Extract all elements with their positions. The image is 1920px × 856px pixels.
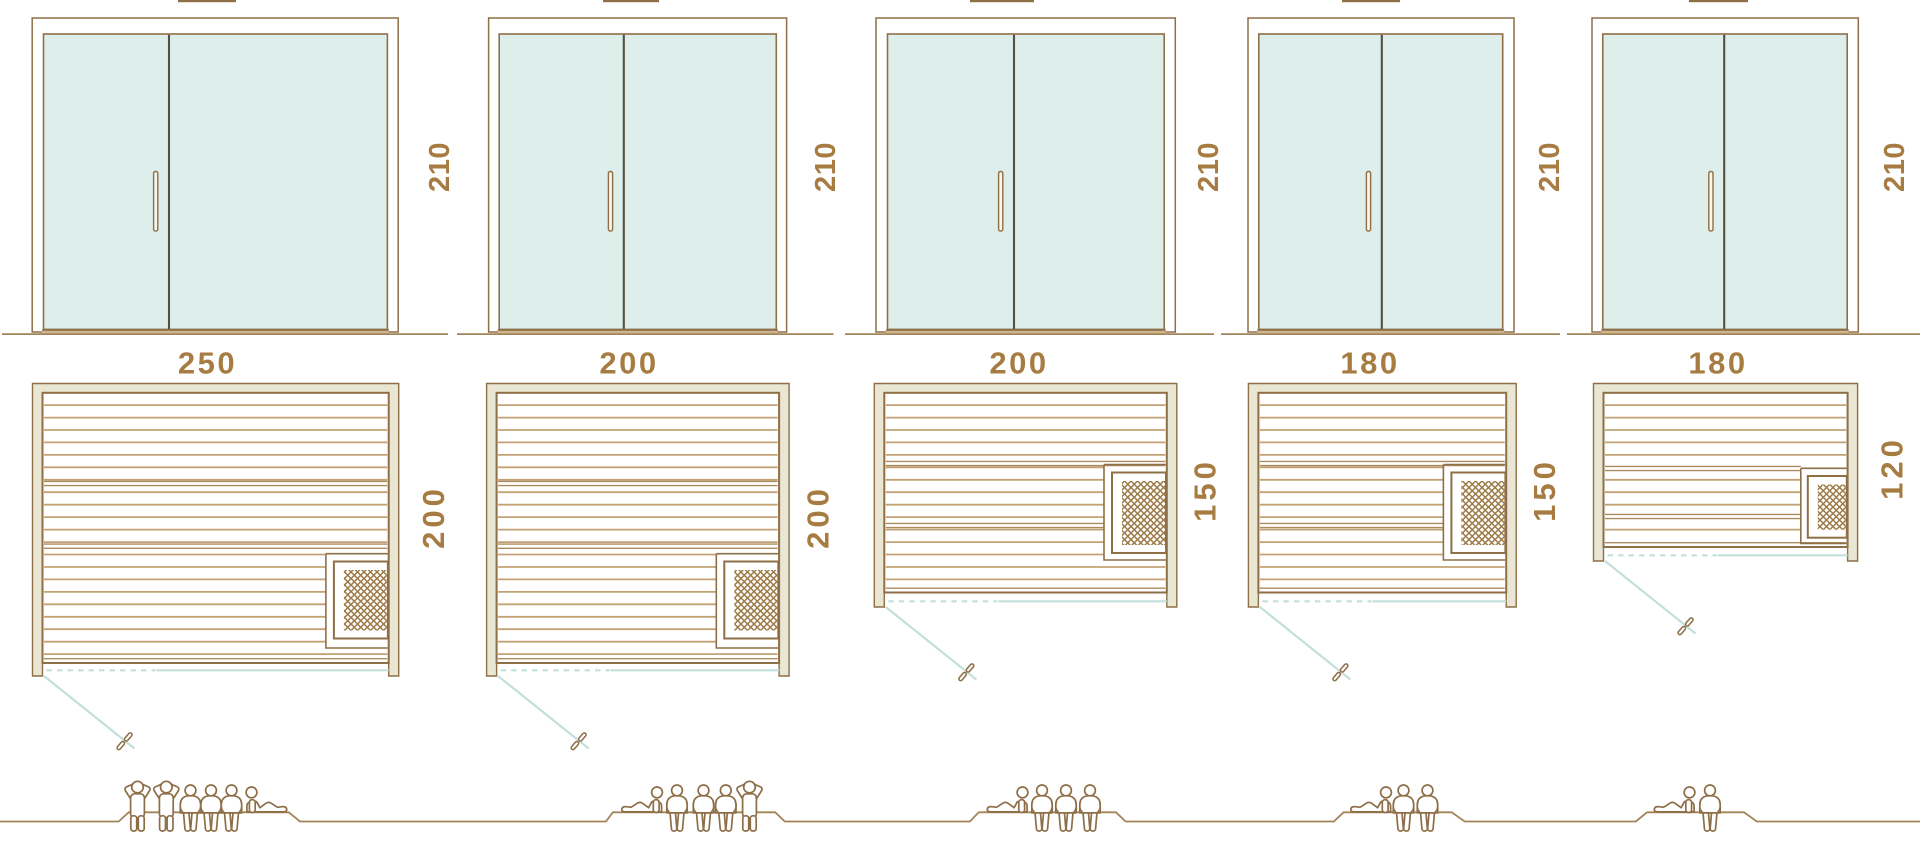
- svg-text:150: 150: [1527, 458, 1562, 522]
- svg-text:120: 120: [1874, 436, 1909, 500]
- svg-text:250: 250: [178, 346, 237, 381]
- svg-text:210: 210: [424, 142, 456, 192]
- svg-text:210: 210: [1193, 142, 1225, 192]
- svg-text:150: 150: [1188, 458, 1223, 522]
- svg-text:200: 200: [989, 346, 1048, 381]
- svg-text:210: 210: [810, 142, 842, 192]
- svg-text:180: 180: [1340, 346, 1399, 381]
- svg-text:180: 180: [1688, 346, 1747, 381]
- svg-text:210: 210: [1534, 142, 1566, 192]
- svg-text:200: 200: [416, 485, 451, 549]
- svg-text:200: 200: [599, 346, 658, 381]
- svg-text:210: 210: [1879, 142, 1911, 192]
- svg-text:200: 200: [801, 485, 836, 549]
